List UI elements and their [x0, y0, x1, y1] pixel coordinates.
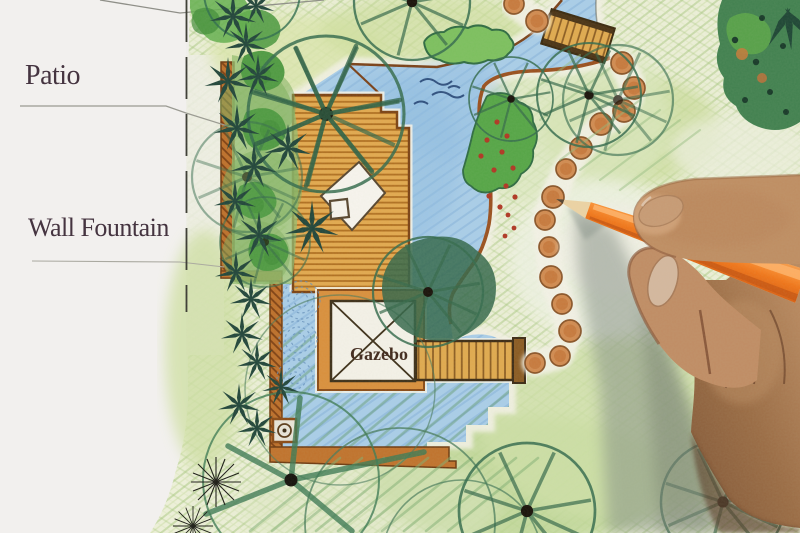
svg-text:Patio: Patio [25, 60, 80, 91]
svg-text:Wall Fountain: Wall Fountain [28, 213, 169, 242]
